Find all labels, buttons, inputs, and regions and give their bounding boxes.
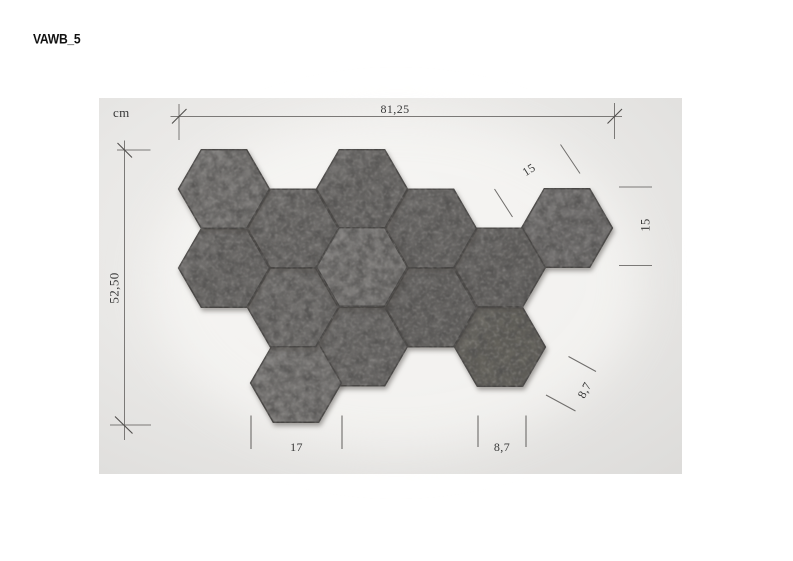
svg-text:81,25: 81,25 [381,102,410,116]
svg-text:VAWB_5: VAWB_5 [33,31,80,47]
svg-text:17: 17 [290,440,303,454]
svg-text:cm: cm [113,105,130,120]
svg-text:52,50: 52,50 [107,272,122,303]
svg-text:15: 15 [639,218,653,231]
svg-text:8,7: 8,7 [494,440,510,454]
